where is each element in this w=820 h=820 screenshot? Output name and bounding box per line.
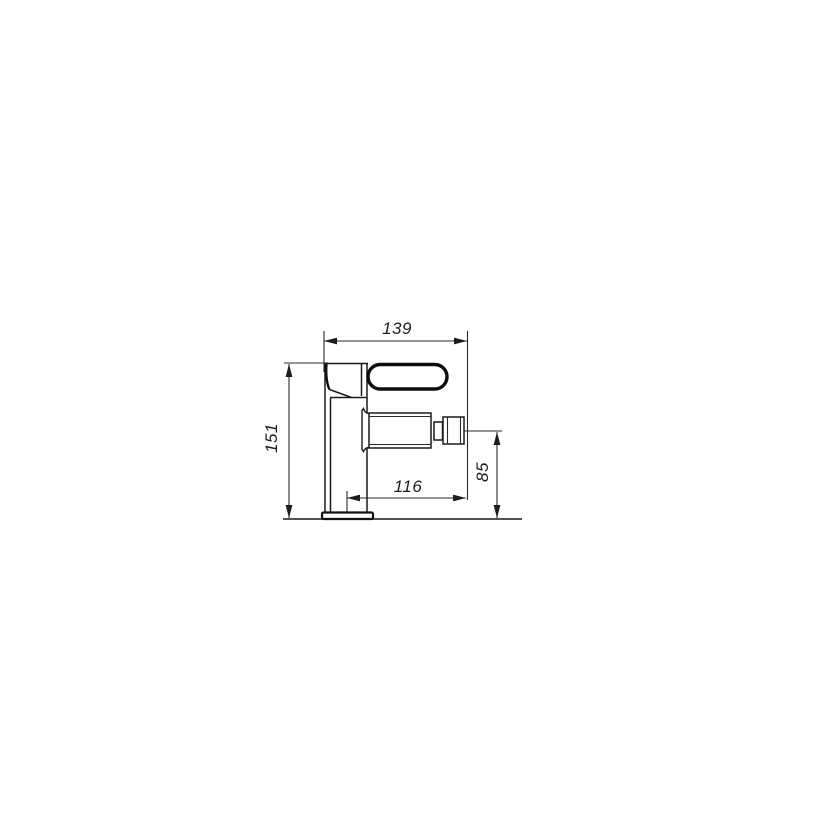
faucet-body xyxy=(325,364,367,514)
dim-spout-reach: 116 xyxy=(347,477,466,501)
faucet-handle xyxy=(368,365,447,390)
dim-spout-outlet-height: 85 xyxy=(473,432,500,518)
dim-spout-reach-label: 116 xyxy=(394,477,423,496)
faucet-head xyxy=(325,364,368,398)
faucet-spout xyxy=(369,413,431,448)
drawing-canvas: 139 151 116 85 xyxy=(0,0,820,820)
dim-overall-height-label: 151 xyxy=(262,423,281,453)
technical-drawing: 139 151 116 85 xyxy=(0,0,820,820)
dim-overall-width-label: 139 xyxy=(382,319,412,338)
dim-spout-outlet-height-label: 85 xyxy=(473,462,492,482)
dim-overall-height: 151 xyxy=(262,364,292,518)
aerator-ring xyxy=(434,422,443,440)
aerator-cap xyxy=(443,417,464,444)
base-plate xyxy=(322,513,373,520)
dim-overall-width: 139 xyxy=(324,319,467,344)
